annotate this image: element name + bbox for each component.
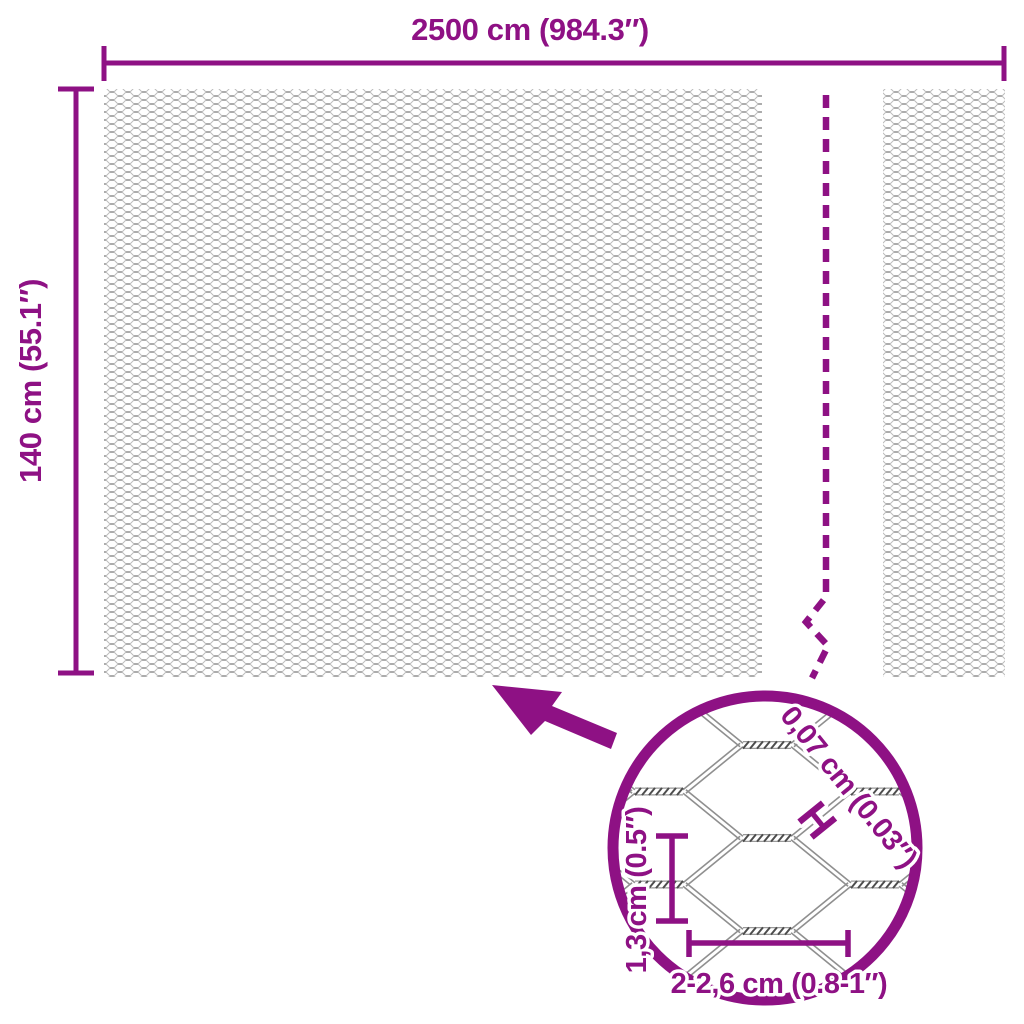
mesh-panel-right — [883, 89, 1005, 677]
product-dimension-diagram: 2500 cm (984.3″) 140 cm (55.1″) 1,3 cm (… — [0, 0, 1024, 1024]
width-dimension-label: 2500 cm (984.3″) — [411, 12, 649, 47]
break-line — [806, 95, 828, 678]
zoom-arrow-icon — [492, 685, 617, 749]
diagram-canvas: 2500 cm (984.3″) 140 cm (55.1″) 1,3 cm (… — [0, 0, 1024, 1024]
cell-height-label: 1,3 cm (0.5″) — [621, 807, 653, 974]
width-dimension-line — [104, 46, 1004, 81]
cell-width-label: 2-2,6 cm (0.8-1″) — [671, 968, 888, 1000]
mesh-panel-main — [104, 89, 762, 677]
height-dimension-label: 140 cm (55.1″) — [13, 279, 48, 483]
height-dimension-line — [58, 89, 94, 673]
magnifier: 1,3 cm (0.5″) 2-2,6 cm (0.8-1″) H 0,07 c… — [600, 685, 930, 1015]
